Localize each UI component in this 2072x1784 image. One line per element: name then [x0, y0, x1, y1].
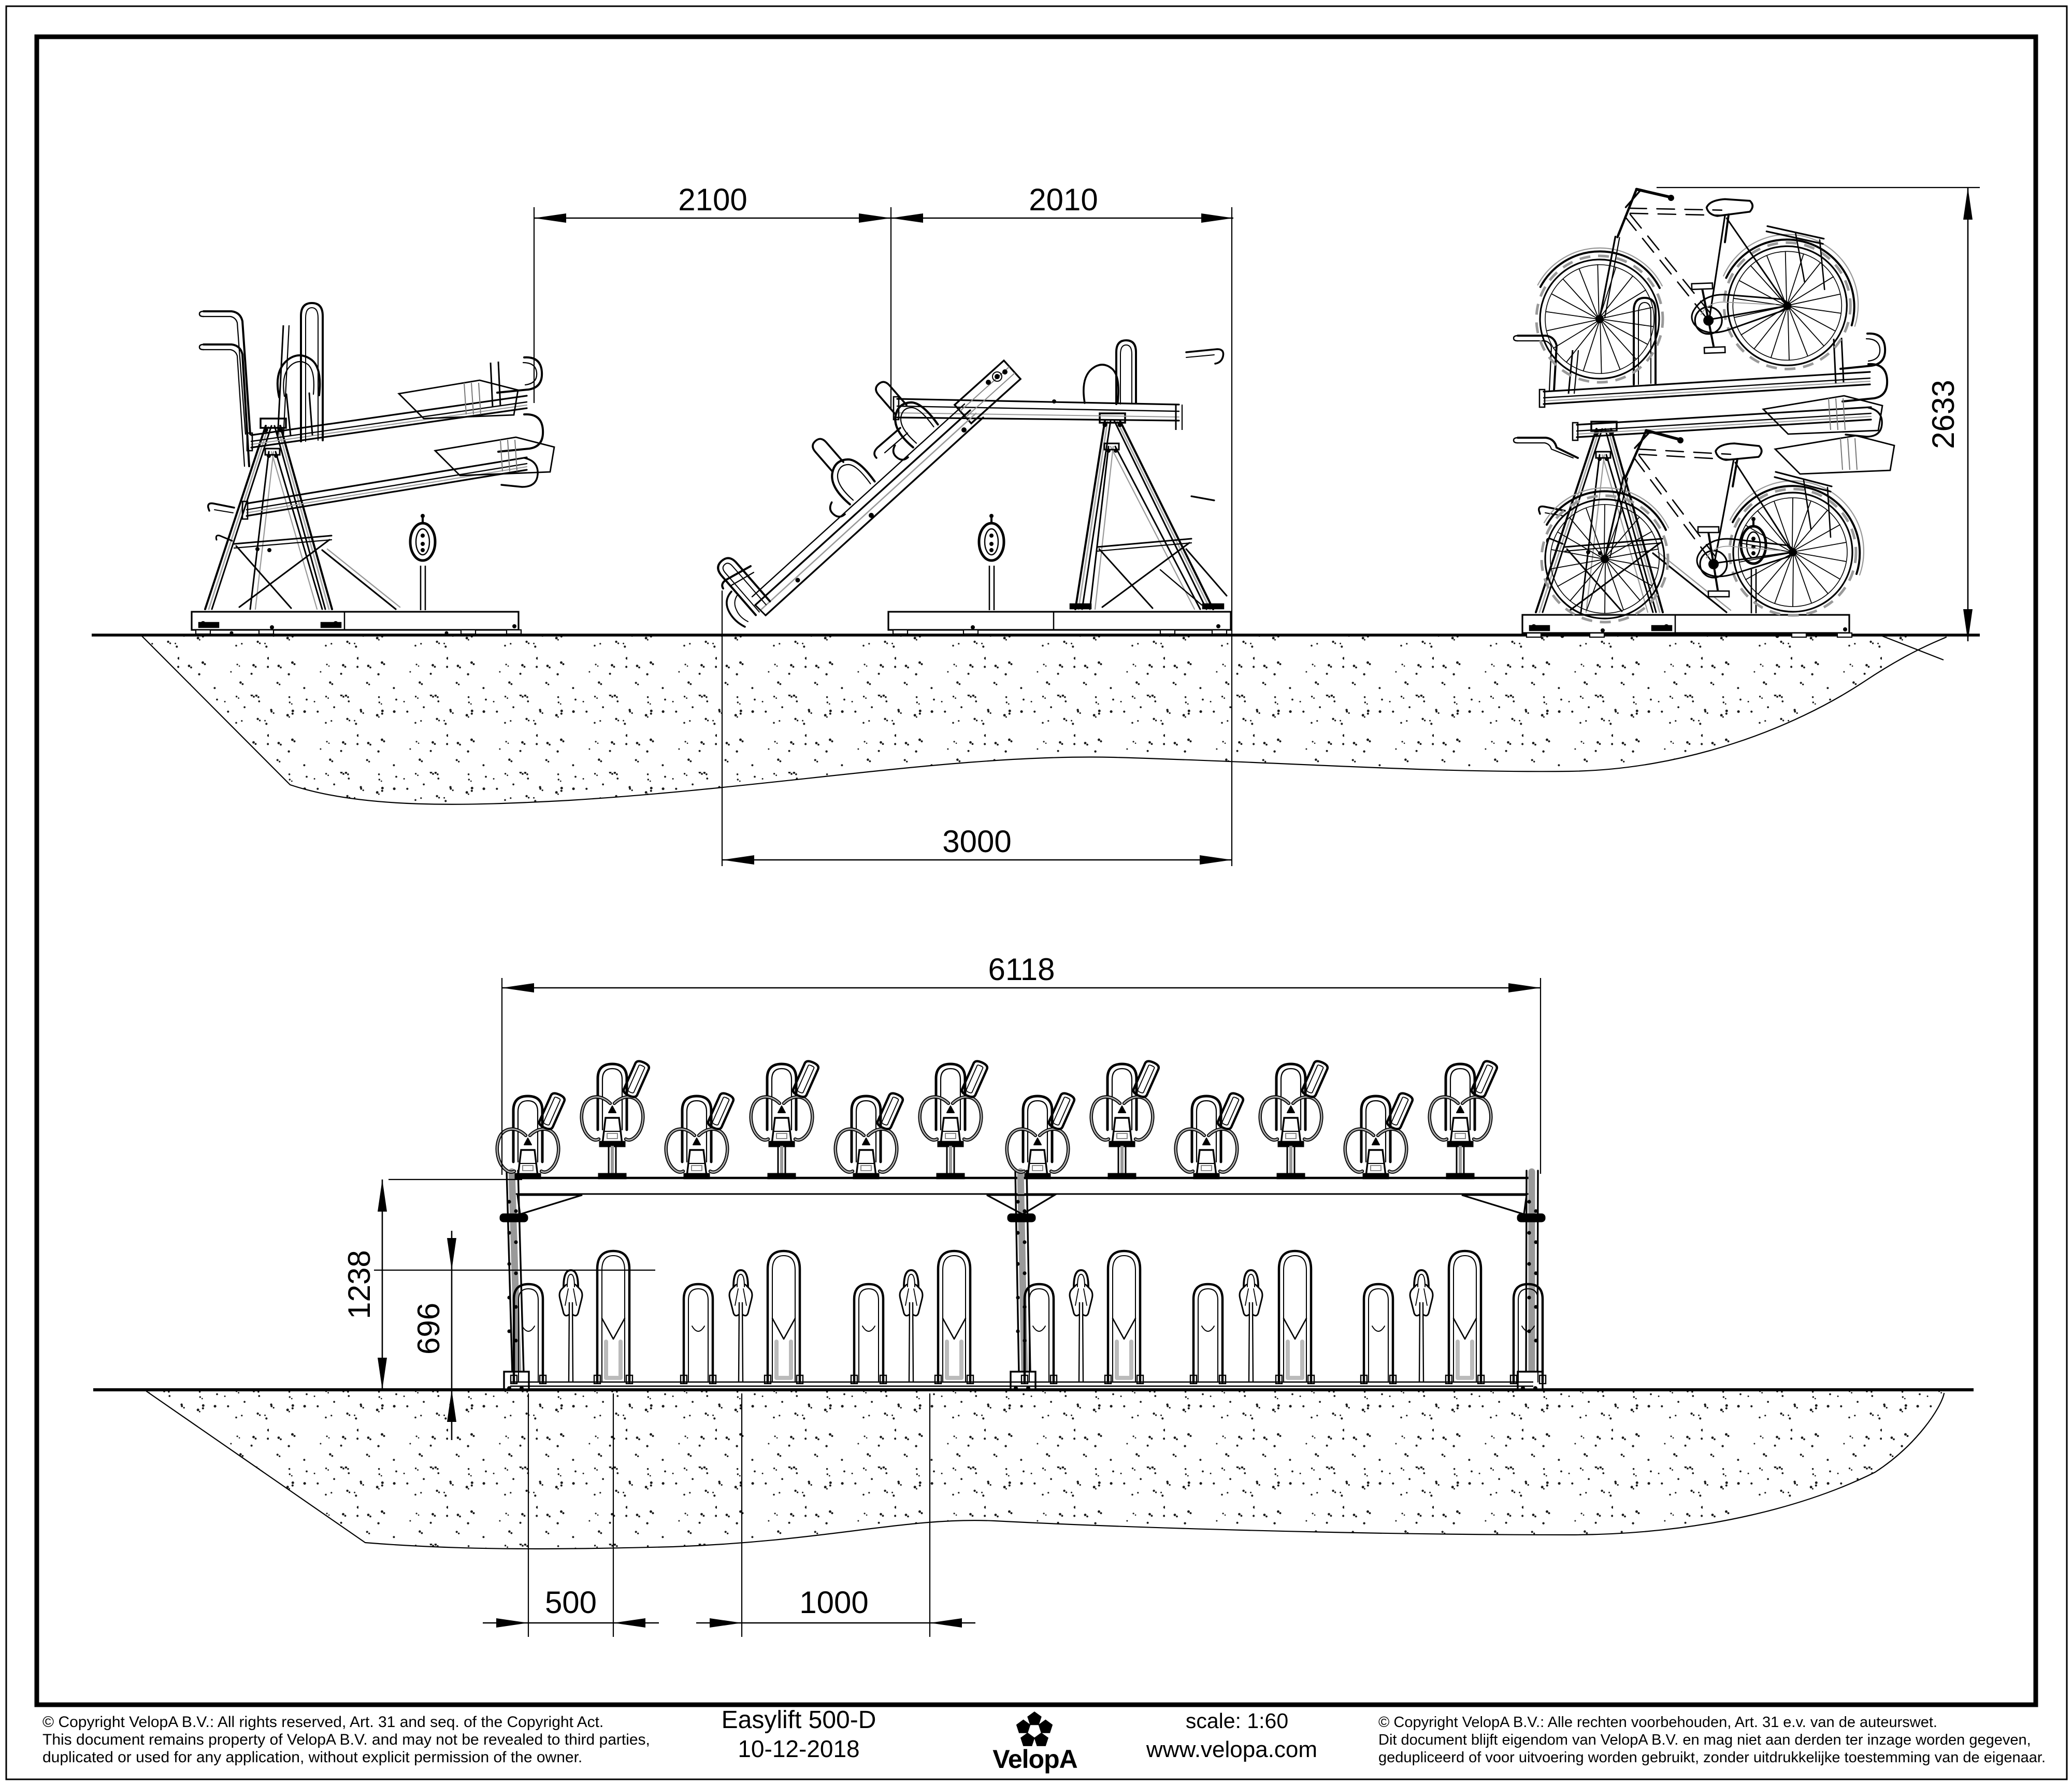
svg-text:duplicated or used for any app: duplicated or used for any application, … — [42, 1749, 582, 1766]
svg-text:gedupliceerd of voor uitvoerin: gedupliceerd of voor uitvoering worden g… — [1378, 1749, 2046, 1766]
svg-text:© Copyright VelopA B.V.: All: © Copyright VelopA B.V.: All rights rese… — [42, 1714, 603, 1731]
svg-text:© Copyright VelopA B.V.: Alle: © Copyright VelopA B.V.: Alle rechten vo… — [1378, 1714, 1937, 1731]
svg-text:VelopA: VelopA — [992, 1745, 1077, 1774]
svg-text:500: 500 — [545, 1585, 597, 1620]
svg-text:6118: 6118 — [988, 952, 1055, 987]
svg-text:2633: 2633 — [1926, 380, 1961, 449]
svg-text:www.velopa.com: www.velopa.com — [1146, 1737, 1317, 1762]
svg-text:Dit document blijft eigendom v: Dit document blijft eigendom van VelopA … — [1378, 1732, 2031, 1748]
svg-text:3000: 3000 — [942, 824, 1011, 859]
svg-text:scale: 1:60: scale: 1:60 — [1186, 1709, 1288, 1733]
svg-text:1238: 1238 — [342, 1250, 377, 1319]
svg-text:Easylift 500-D: Easylift 500-D — [722, 1706, 876, 1734]
svg-text:696: 696 — [411, 1303, 446, 1355]
svg-text:1000: 1000 — [799, 1585, 868, 1620]
svg-text:2010: 2010 — [1029, 182, 1098, 217]
svg-text:10-12-2018: 10-12-2018 — [738, 1735, 859, 1762]
svg-text:This document remains property: This document remains property of VelopA… — [42, 1731, 650, 1748]
svg-text:2100: 2100 — [678, 182, 747, 217]
